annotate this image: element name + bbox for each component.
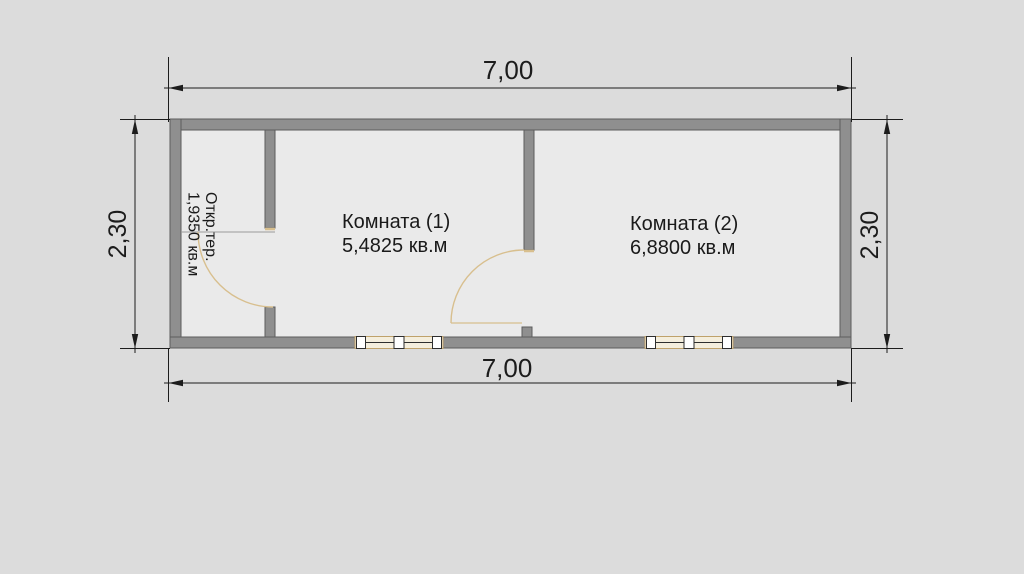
floor-plan-canvas: 7,00 7,00 2,30 2,30 [0, 0, 1024, 574]
room1-name: Комната (1) [342, 211, 450, 233]
window-post [647, 337, 656, 349]
dim-arrow-right [837, 85, 852, 91]
dim-arrow-down [132, 334, 138, 349]
window-room1 [355, 337, 443, 349]
partition-rooms-upper [524, 130, 534, 250]
room1-area: 5,4825 кв.м [342, 235, 447, 257]
floor-plan-drawing: 7,00 7,00 2,30 2,30 [0, 0, 1024, 574]
partition-terrace-stub [265, 307, 275, 337]
dimension-right: 2,30 [851, 115, 903, 353]
dim-arrow-left [169, 380, 184, 386]
dim-arrow-right [837, 380, 852, 386]
dim-value-right: 2,30 [856, 211, 884, 260]
dimension-left: 2,30 [104, 115, 170, 353]
window-post [394, 337, 404, 349]
dim-arrow-left [169, 85, 184, 91]
partition-rooms-stub [522, 327, 532, 337]
window-room2 [645, 337, 733, 349]
wall-bottom-segment [443, 337, 645, 348]
wall-bottom-segment [733, 337, 851, 348]
terrace-name: Откр.тер. [202, 192, 219, 262]
partition-terrace-upper [265, 130, 275, 228]
room2-area: 6,8800 кв.м [630, 237, 735, 259]
wall-left [170, 119, 181, 348]
dim-value-bottom: 7,00 [482, 353, 533, 383]
window-post [684, 337, 694, 349]
dimension-top: 7,00 [164, 55, 856, 122]
window-post [357, 337, 366, 349]
wall-bottom-segment [170, 337, 355, 348]
dim-value-left: 2,30 [104, 210, 132, 259]
window-post [433, 337, 442, 349]
terrace-area: 1,9350 кв.м [185, 192, 202, 276]
wall-right [840, 119, 851, 348]
dim-arrow-up [132, 120, 138, 135]
dim-arrow-up [884, 120, 890, 135]
dimension-bottom: 7,00 [164, 348, 856, 402]
wall-top [170, 119, 851, 130]
room2-name: Комната (2) [630, 213, 738, 235]
window-post [723, 337, 732, 349]
dim-value-top: 7,00 [483, 55, 534, 85]
dim-arrow-down [884, 334, 890, 349]
